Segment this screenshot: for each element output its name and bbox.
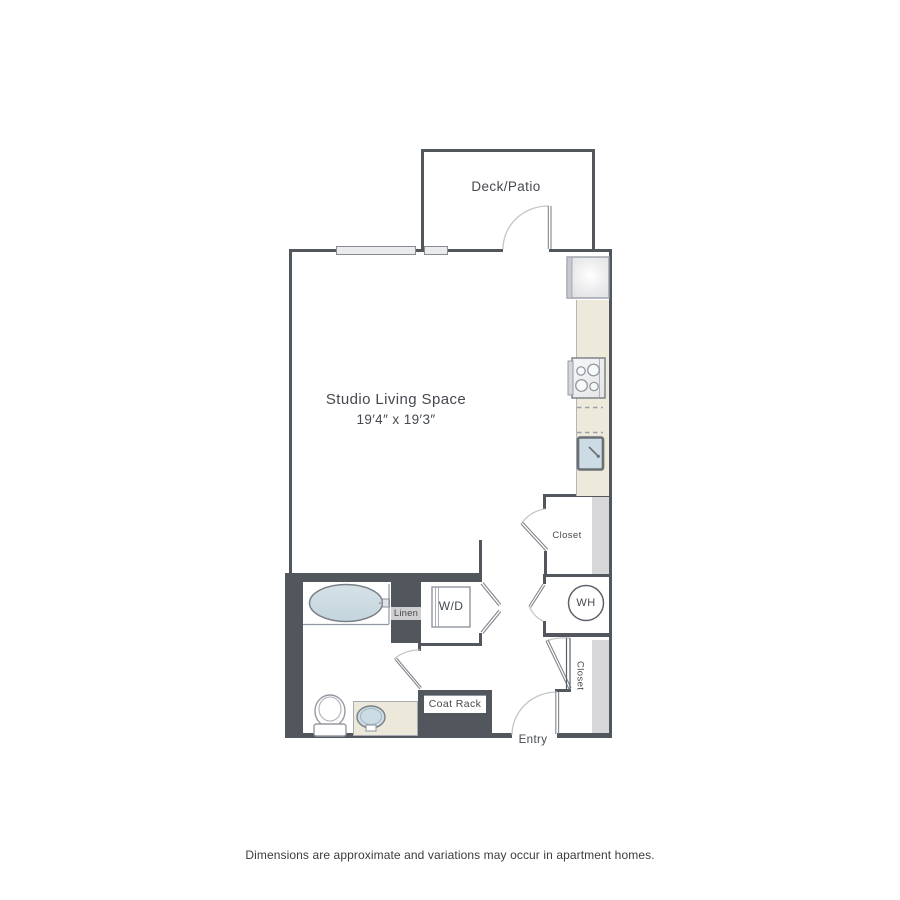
dishwasher-dashes (577, 408, 603, 433)
water-heater-label: WH (566, 597, 606, 609)
deck-door-icon (503, 206, 551, 249)
deck-patio-label: Deck/Patio (446, 180, 566, 195)
toilet-icon (314, 695, 346, 736)
closet-label: Closet (537, 531, 597, 541)
refrigerator-icon (567, 257, 609, 298)
kitchen-sink-icon (578, 438, 603, 470)
linen-label: Linen (391, 609, 421, 619)
living-space-label: Studio Living Space (296, 392, 496, 409)
water-heater-door-icon (529, 584, 545, 621)
living-space-dimensions: 19′4″ x 19′3″ (296, 413, 496, 428)
washer-dryer-label: W/D (432, 600, 470, 613)
entry-closet-label: Closet (575, 661, 585, 713)
fixtures-layer (0, 0, 900, 900)
closet-door-icon (521, 509, 548, 551)
bathtub-icon (303, 584, 390, 625)
bathroom-door-icon (394, 650, 422, 689)
stove-icon (568, 358, 605, 398)
entry-label: Entry (508, 734, 558, 747)
entry-closet-door-icon (546, 638, 571, 691)
coat-rack-label: Coat Rack (424, 699, 486, 711)
washer-dryer-door-icon (481, 583, 501, 634)
vanity-sink-icon (357, 706, 385, 731)
disclaimer-text: Dimensions are approximate and variation… (0, 848, 900, 862)
floor-plan: Deck/Patio Studio Living Space 19′4″ x 1… (0, 0, 900, 900)
entry-door-icon (512, 692, 559, 735)
